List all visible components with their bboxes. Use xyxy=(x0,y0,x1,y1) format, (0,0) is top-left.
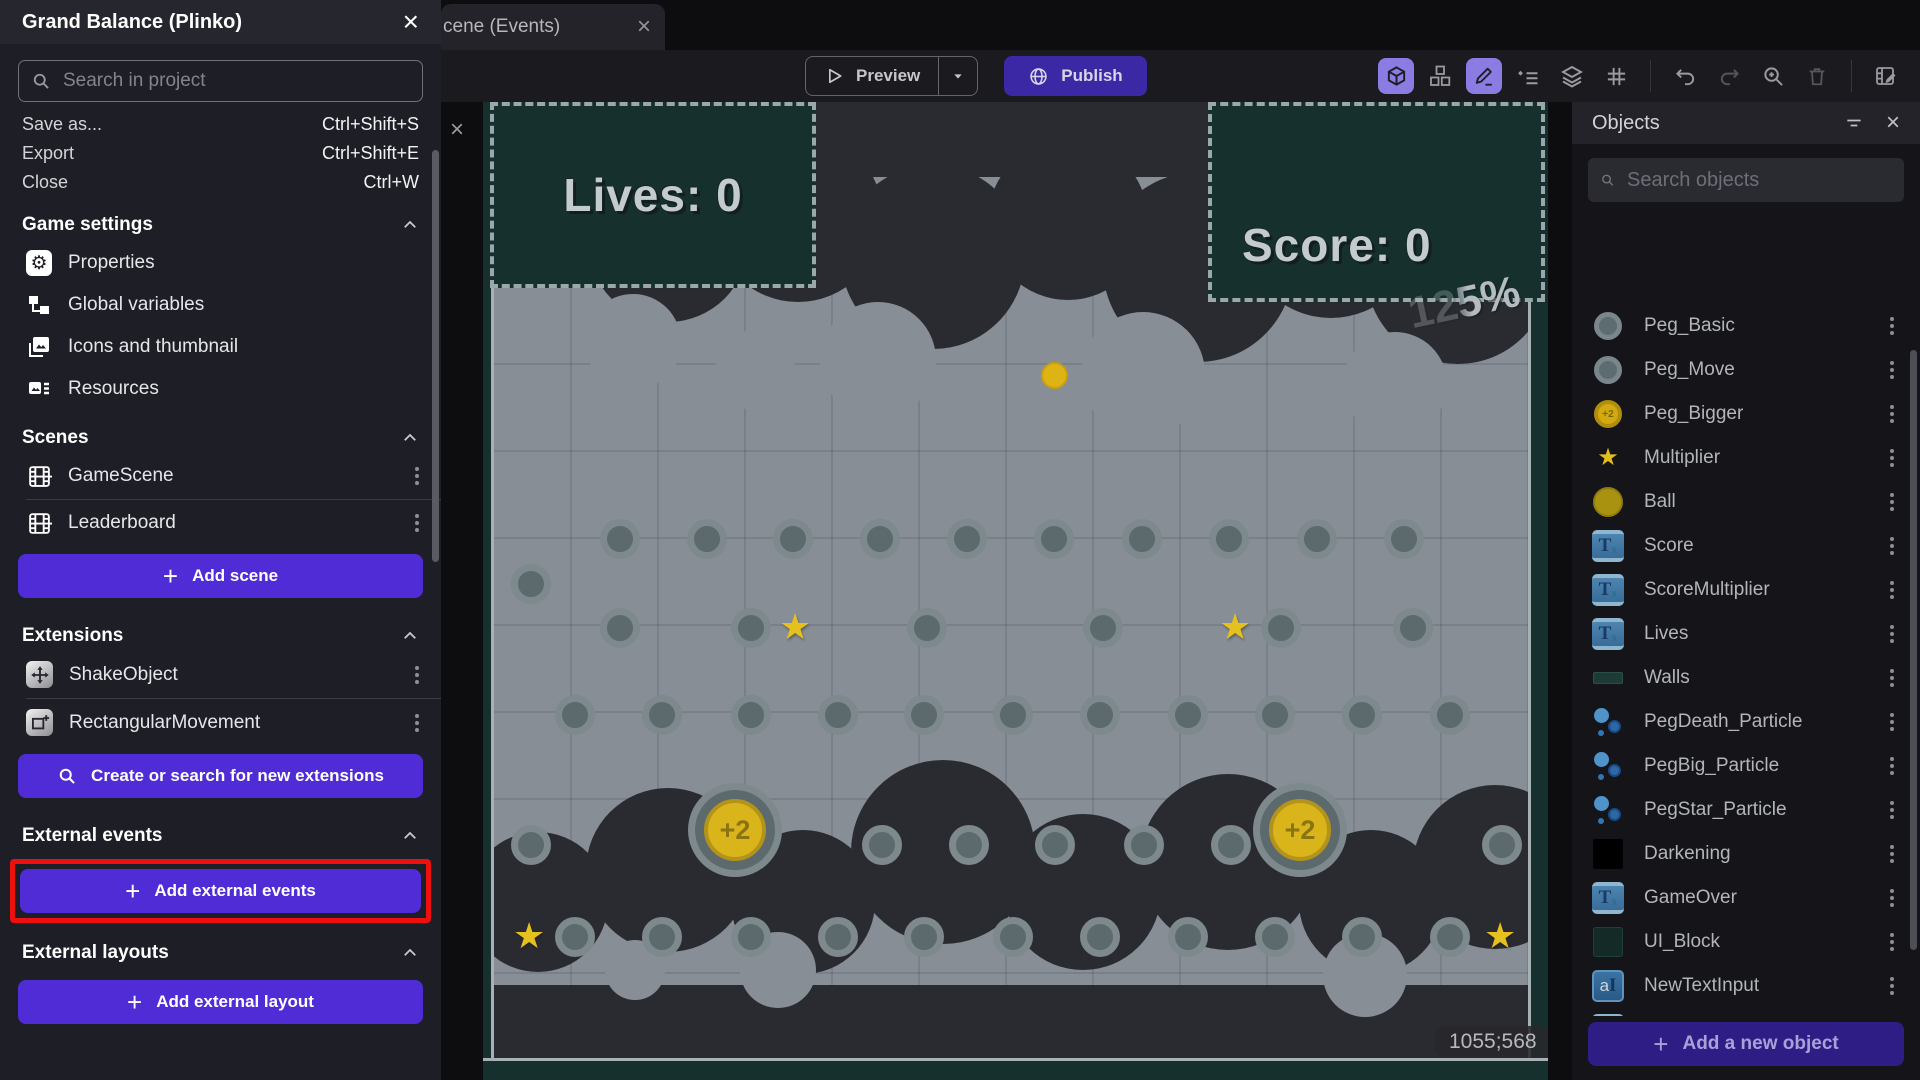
object-name: Walls xyxy=(1644,667,1690,689)
plus-icon: + xyxy=(125,878,140,904)
menu-shortcut: Ctrl+Shift+S xyxy=(322,114,419,135)
object-list-item[interactable]: Walls xyxy=(1572,656,1910,700)
star[interactable]: ★ xyxy=(779,609,811,645)
object-list-item[interactable]: Darkening xyxy=(1572,832,1910,876)
peg[interactable] xyxy=(1342,917,1382,957)
multiplier-coin[interactable]: +2 xyxy=(1253,783,1347,877)
peg[interactable] xyxy=(904,695,944,735)
object-list: Peg_BasicPeg_Move+2Peg_Bigger★Multiplier… xyxy=(1572,304,1910,1016)
peg[interactable] xyxy=(1122,519,1162,559)
peg[interactable] xyxy=(642,917,682,957)
object-name: NewTextInput xyxy=(1644,975,1759,997)
peg[interactable] xyxy=(511,825,551,865)
button-label: Add a new object xyxy=(1682,1033,1838,1055)
scene-canvas[interactable]: × xyxy=(441,102,1572,1080)
peg[interactable] xyxy=(947,519,987,559)
section-title: External layouts xyxy=(22,942,169,964)
object-menu-dots[interactable] xyxy=(1890,405,1894,423)
search-icon xyxy=(57,766,77,786)
highlight-red-box: + Add external events xyxy=(10,859,431,923)
item-label: Resources xyxy=(68,378,159,400)
button-label: Create or search for new extensions xyxy=(91,766,384,786)
item-label: Global variables xyxy=(68,294,204,316)
add-scene-button[interactable]: + Add scene xyxy=(18,554,423,598)
add-new-object-button[interactable]: + Add a new object xyxy=(1588,1022,1904,1066)
peg[interactable] xyxy=(860,519,900,559)
edit-properties-icon[interactable] xyxy=(1466,58,1502,94)
object-name: Score xyxy=(1644,535,1694,557)
object-menu-dots[interactable] xyxy=(1890,757,1894,775)
object-list-item[interactable]: PegDeath_Particle xyxy=(1572,700,1910,744)
peg[interactable] xyxy=(1168,695,1208,735)
object-list-item[interactable]: TxLives xyxy=(1572,612,1910,656)
add-external-layout-button[interactable]: + Add external layout xyxy=(18,980,423,1024)
peg[interactable] xyxy=(862,825,902,865)
peg[interactable] xyxy=(687,519,727,559)
section-title: External events xyxy=(22,825,162,847)
publish-label: Publish xyxy=(1061,66,1122,86)
toolbar-icons xyxy=(1378,58,1920,94)
peg[interactable] xyxy=(1255,917,1295,957)
text-icon: Tx xyxy=(1590,616,1626,652)
extension-item-rectangularmovement[interactable]: RectangularMovement xyxy=(0,701,441,744)
object-menu-dots[interactable] xyxy=(1890,801,1894,819)
project-manager-panel: Grand Balance (Plinko) × Save as... Ctrl… xyxy=(0,0,441,1080)
tab-scene-events[interactable]: cene (Events) × xyxy=(441,4,665,50)
wall-bottom[interactable] xyxy=(483,1058,1548,1080)
chevron-up-icon[interactable] xyxy=(401,429,419,447)
instances-list-icon[interactable] xyxy=(1510,58,1546,94)
item-label: Properties xyxy=(68,252,155,274)
object-menu-dots[interactable] xyxy=(1890,669,1894,687)
chevron-up-icon[interactable] xyxy=(401,827,419,845)
peg[interactable] xyxy=(1080,695,1120,735)
menu-label: Export xyxy=(22,143,74,164)
wall-icon xyxy=(1590,660,1626,696)
item-label: Leaderboard xyxy=(68,512,176,534)
objects-panel-icon[interactable] xyxy=(1378,58,1414,94)
objects-header: Objects × xyxy=(1572,102,1920,144)
layers-icon[interactable] xyxy=(1554,58,1590,94)
search-icon xyxy=(1600,170,1615,190)
section-title: Game settings xyxy=(22,214,153,236)
button-label: Add external layout xyxy=(156,992,314,1012)
peg[interactable] xyxy=(818,917,858,957)
lives-panel[interactable]: Lives: 0 xyxy=(490,102,816,288)
object-name: Peg_Move xyxy=(1644,359,1735,381)
item-label: RectangularMovement xyxy=(69,712,260,734)
peg[interactable] xyxy=(731,695,771,735)
text-icon: Tx xyxy=(1590,1012,1626,1016)
item-label: GameScene xyxy=(68,465,174,487)
project-search[interactable] xyxy=(18,60,423,102)
star[interactable]: ★ xyxy=(1219,609,1251,645)
peg[interactable] xyxy=(600,519,640,559)
objects-header-tools: × xyxy=(1844,111,1900,135)
object-menu-dots[interactable] xyxy=(1890,537,1894,555)
object-list-item[interactable]: +2Peg_Bigger xyxy=(1572,392,1910,436)
peg[interactable] xyxy=(1430,917,1470,957)
black-icon xyxy=(1590,836,1626,872)
section-scenes[interactable]: Scenes xyxy=(0,410,441,455)
multiplier-coin[interactable]: +2 xyxy=(688,783,782,877)
object-list-item[interactable]: ★Multiplier xyxy=(1572,436,1910,480)
objects-panel: Objects × Peg_BasicPeg_Move+2Peg_Bigger★… xyxy=(1572,102,1920,1080)
score-text[interactable]: Score: 0 xyxy=(1242,219,1432,271)
scrollbar-thumb[interactable] xyxy=(1910,350,1917,950)
object-name: GameOver xyxy=(1644,887,1737,909)
plus-icon: + xyxy=(163,563,178,589)
peg[interactable] xyxy=(555,695,595,735)
text-icon: Tx xyxy=(1590,572,1626,608)
objects-search[interactable] xyxy=(1588,158,1904,202)
peg[interactable] xyxy=(818,695,858,735)
object-list-item[interactable]: TxScore xyxy=(1572,524,1910,568)
menu-shortcut: Ctrl+W xyxy=(364,172,420,193)
divider xyxy=(26,698,441,699)
star-icon: ★ xyxy=(1590,440,1626,476)
menu-item-export[interactable]: Export Ctrl+Shift+E xyxy=(0,139,441,168)
peg[interactable] xyxy=(773,519,813,559)
tab-label: cene (Events) xyxy=(443,16,560,38)
preview-button[interactable]: Preview xyxy=(805,56,978,96)
peg[interactable] xyxy=(1035,825,1075,865)
peg-icon xyxy=(1590,308,1626,344)
peg[interactable] xyxy=(1342,695,1382,735)
peg[interactable] xyxy=(1297,519,1337,559)
peg[interactable] xyxy=(1168,917,1208,957)
project-header: Grand Balance (Plinko) × xyxy=(0,0,441,44)
peg[interactable] xyxy=(1384,519,1424,559)
object-list-item[interactable]: Peg_Move xyxy=(1572,348,1910,392)
search-extensions-button[interactable]: Create or search for new extensions xyxy=(18,754,423,798)
undo-icon[interactable] xyxy=(1667,58,1703,94)
peg[interactable] xyxy=(731,608,771,648)
resources-icon xyxy=(26,376,52,402)
peg[interactable] xyxy=(731,917,771,957)
peg[interactable] xyxy=(1083,608,1123,648)
peg[interactable] xyxy=(1255,695,1295,735)
project-menu: Save as... Ctrl+Shift+S Export Ctrl+Shif… xyxy=(0,110,441,197)
object-name: Peg_Bigger xyxy=(1644,403,1743,425)
peg[interactable] xyxy=(600,608,640,648)
peg[interactable] xyxy=(949,825,989,865)
peg[interactable] xyxy=(993,917,1033,957)
plus-icon: + xyxy=(1653,1029,1668,1060)
preview-label: Preview xyxy=(856,66,920,86)
divider xyxy=(26,499,441,500)
peg[interactable] xyxy=(1211,825,1251,865)
redo-icon[interactable] xyxy=(1711,58,1747,94)
scrollbar-thumb[interactable] xyxy=(432,150,439,562)
extension-item-shakeobject[interactable]: ShakeObject xyxy=(0,653,441,696)
film-icon xyxy=(26,510,52,536)
peg[interactable] xyxy=(555,917,595,957)
object-list-item[interactable]: TxSubmitScore xyxy=(1572,1008,1910,1016)
globe-icon xyxy=(1028,66,1049,87)
lives-text[interactable]: Lives: 0 xyxy=(563,168,742,222)
cursor-coordinates: 1055;568 xyxy=(1435,1026,1548,1058)
close-icon[interactable]: × xyxy=(1886,111,1900,135)
chevron-up-icon[interactable] xyxy=(401,627,419,645)
preview-main[interactable]: Preview xyxy=(806,57,938,95)
search-input[interactable] xyxy=(63,70,410,92)
section-extensions[interactable]: Extensions xyxy=(0,608,441,653)
menu-item-close[interactable]: Close Ctrl+W xyxy=(0,168,441,197)
ball[interactable] xyxy=(1041,362,1068,389)
object-list-item[interactable]: PegBig_Particle xyxy=(1572,744,1910,788)
chevron-up-icon[interactable] xyxy=(401,944,419,962)
tab-bar: cene (Events) × xyxy=(441,0,1920,50)
peg[interactable] xyxy=(1034,519,1074,559)
rectangle-plus-icon xyxy=(26,709,53,736)
object-menu-dots[interactable] xyxy=(1890,933,1894,951)
item-label: ShakeObject xyxy=(69,664,178,686)
gdevelop-editor: cene (Events) × Preview Publish xyxy=(0,0,1920,1080)
peg[interactable] xyxy=(1080,917,1120,957)
item-menu-dots[interactable] xyxy=(415,467,419,485)
particle-icon xyxy=(1590,704,1626,740)
peg[interactable] xyxy=(1261,608,1301,648)
object-list-item[interactable]: TxGameOver xyxy=(1572,876,1910,920)
chevron-up-icon[interactable] xyxy=(401,216,419,234)
scene-item-leaderboard[interactable]: Leaderboard xyxy=(0,502,441,544)
object-menu-dots[interactable] xyxy=(1890,713,1894,731)
star[interactable]: ★ xyxy=(1484,918,1516,954)
text-icon: Tx xyxy=(1590,528,1626,564)
button-label: Add external events xyxy=(154,881,316,901)
image-icon xyxy=(26,334,52,360)
add-external-events-button[interactable]: + Add external events xyxy=(20,869,421,913)
object-name: PegDeath_Particle xyxy=(1644,711,1802,733)
peg[interactable] xyxy=(642,695,682,735)
variables-icon xyxy=(26,292,52,318)
object-menu-dots[interactable] xyxy=(1890,449,1894,467)
menu-label: Close xyxy=(22,172,68,193)
peg[interactable] xyxy=(1209,519,1249,559)
publish-button[interactable]: Publish xyxy=(1004,56,1146,96)
filter-icon[interactable] xyxy=(1844,113,1864,133)
play-icon xyxy=(824,66,844,86)
object-name: Darkening xyxy=(1644,843,1731,865)
coin-icon: +2 xyxy=(1590,396,1626,432)
object-list-item[interactable]: PegStar_Particle xyxy=(1572,788,1910,832)
item-menu-dots[interactable] xyxy=(415,666,419,684)
delete-icon[interactable] xyxy=(1799,58,1835,94)
button-label: Add scene xyxy=(192,566,278,586)
star[interactable]: ★ xyxy=(513,918,545,954)
particle-icon xyxy=(1590,792,1626,828)
section-external-layouts[interactable]: External layouts xyxy=(0,925,441,970)
object-menu-dots[interactable] xyxy=(1890,625,1894,643)
toolbar-separator xyxy=(1851,60,1852,92)
plus-icon: + xyxy=(127,989,142,1015)
project-title: Grand Balance (Plinko) xyxy=(22,11,242,34)
close-icon[interactable]: × xyxy=(403,6,419,38)
object-menu-dots[interactable] xyxy=(1890,889,1894,907)
chevron-down-icon xyxy=(950,68,966,84)
preview-dropdown[interactable] xyxy=(939,68,977,84)
objects-title: Objects xyxy=(1592,112,1660,135)
toolbar-separator xyxy=(1650,60,1651,92)
edit-events-icon[interactable] xyxy=(1868,58,1904,94)
search-icon xyxy=(31,71,51,91)
peg[interactable] xyxy=(907,608,947,648)
peg[interactable] xyxy=(511,564,551,604)
item-label: Icons and thumbnail xyxy=(68,336,238,358)
object-name: PegBig_Particle xyxy=(1644,755,1779,777)
instances-icon[interactable] xyxy=(1422,58,1458,94)
object-name: ScoreMultiplier xyxy=(1644,579,1770,601)
object-name: UI_Block xyxy=(1644,931,1720,953)
ball-icon xyxy=(1590,484,1626,520)
object-name: Peg_Basic xyxy=(1644,315,1735,337)
text-icon: Tx xyxy=(1590,880,1626,916)
toolbar: Preview Publish xyxy=(441,50,1920,102)
object-menu-dots[interactable] xyxy=(1890,845,1894,863)
section-title: Scenes xyxy=(22,427,89,449)
peg[interactable] xyxy=(1124,825,1164,865)
object-menu-dots[interactable] xyxy=(1890,581,1894,599)
object-list-item[interactable]: Ball xyxy=(1572,480,1910,524)
item-menu-dots[interactable] xyxy=(415,514,419,532)
item-menu-dots[interactable] xyxy=(415,714,419,732)
object-menu-dots[interactable] xyxy=(1890,317,1894,335)
object-list-item[interactable]: Peg_Basic xyxy=(1572,304,1910,348)
tab-close-icon[interactable]: × xyxy=(637,15,651,39)
section-title: Extensions xyxy=(22,625,123,647)
sidebar-item-properties[interactable]: ⚙ Properties xyxy=(0,242,441,284)
sidebar-item-global-variables[interactable]: Global variables xyxy=(0,284,441,326)
section-game-settings[interactable]: Game settings xyxy=(0,197,441,242)
peg[interactable] xyxy=(993,695,1033,735)
sidebar-item-resources[interactable]: Resources xyxy=(0,368,441,410)
film-icon xyxy=(26,463,52,489)
gear-icon: ⚙ xyxy=(26,250,52,276)
block-icon xyxy=(1590,924,1626,960)
peg-icon xyxy=(1590,352,1626,388)
textinput-icon: aI xyxy=(1590,968,1626,1004)
move-arrows-icon xyxy=(26,661,53,688)
object-list-item[interactable]: UI_Block xyxy=(1572,920,1910,964)
panel-close-icon[interactable]: × xyxy=(450,116,464,144)
peg[interactable] xyxy=(1430,695,1470,735)
particle-icon xyxy=(1590,748,1626,784)
menu-item-save-as[interactable]: Save as... Ctrl+Shift+S xyxy=(0,110,441,139)
zoom-in-icon[interactable] xyxy=(1755,58,1791,94)
sidebar-item-icons-thumbnail[interactable]: Icons and thumbnail xyxy=(0,326,441,368)
objects-search-input[interactable] xyxy=(1627,169,1892,192)
menu-shortcut: Ctrl+Shift+E xyxy=(322,143,419,164)
object-name: Lives xyxy=(1644,623,1688,645)
scene-item-gamescene[interactable]: GameScene xyxy=(0,455,441,497)
object-menu-dots[interactable] xyxy=(1890,361,1894,379)
object-name: PegStar_Particle xyxy=(1644,799,1787,821)
menu-label: Save as... xyxy=(22,114,102,135)
object-list-item[interactable]: TxScoreMultiplier xyxy=(1572,568,1910,612)
object-list-item[interactable]: aINewTextInput xyxy=(1572,964,1910,1008)
scene-background[interactable]: +2+2★★★★ Lives: 0 Score: 0 125% 1055;568 xyxy=(483,102,1548,1080)
peg[interactable] xyxy=(1393,608,1433,648)
object-name: Ball xyxy=(1644,491,1676,513)
peg[interactable] xyxy=(904,917,944,957)
peg[interactable] xyxy=(1482,825,1522,865)
object-name: Multiplier xyxy=(1644,447,1720,469)
grid-icon[interactable] xyxy=(1598,58,1634,94)
object-menu-dots[interactable] xyxy=(1890,493,1894,511)
object-menu-dots[interactable] xyxy=(1890,977,1894,995)
section-external-events[interactable]: External events xyxy=(0,808,441,853)
